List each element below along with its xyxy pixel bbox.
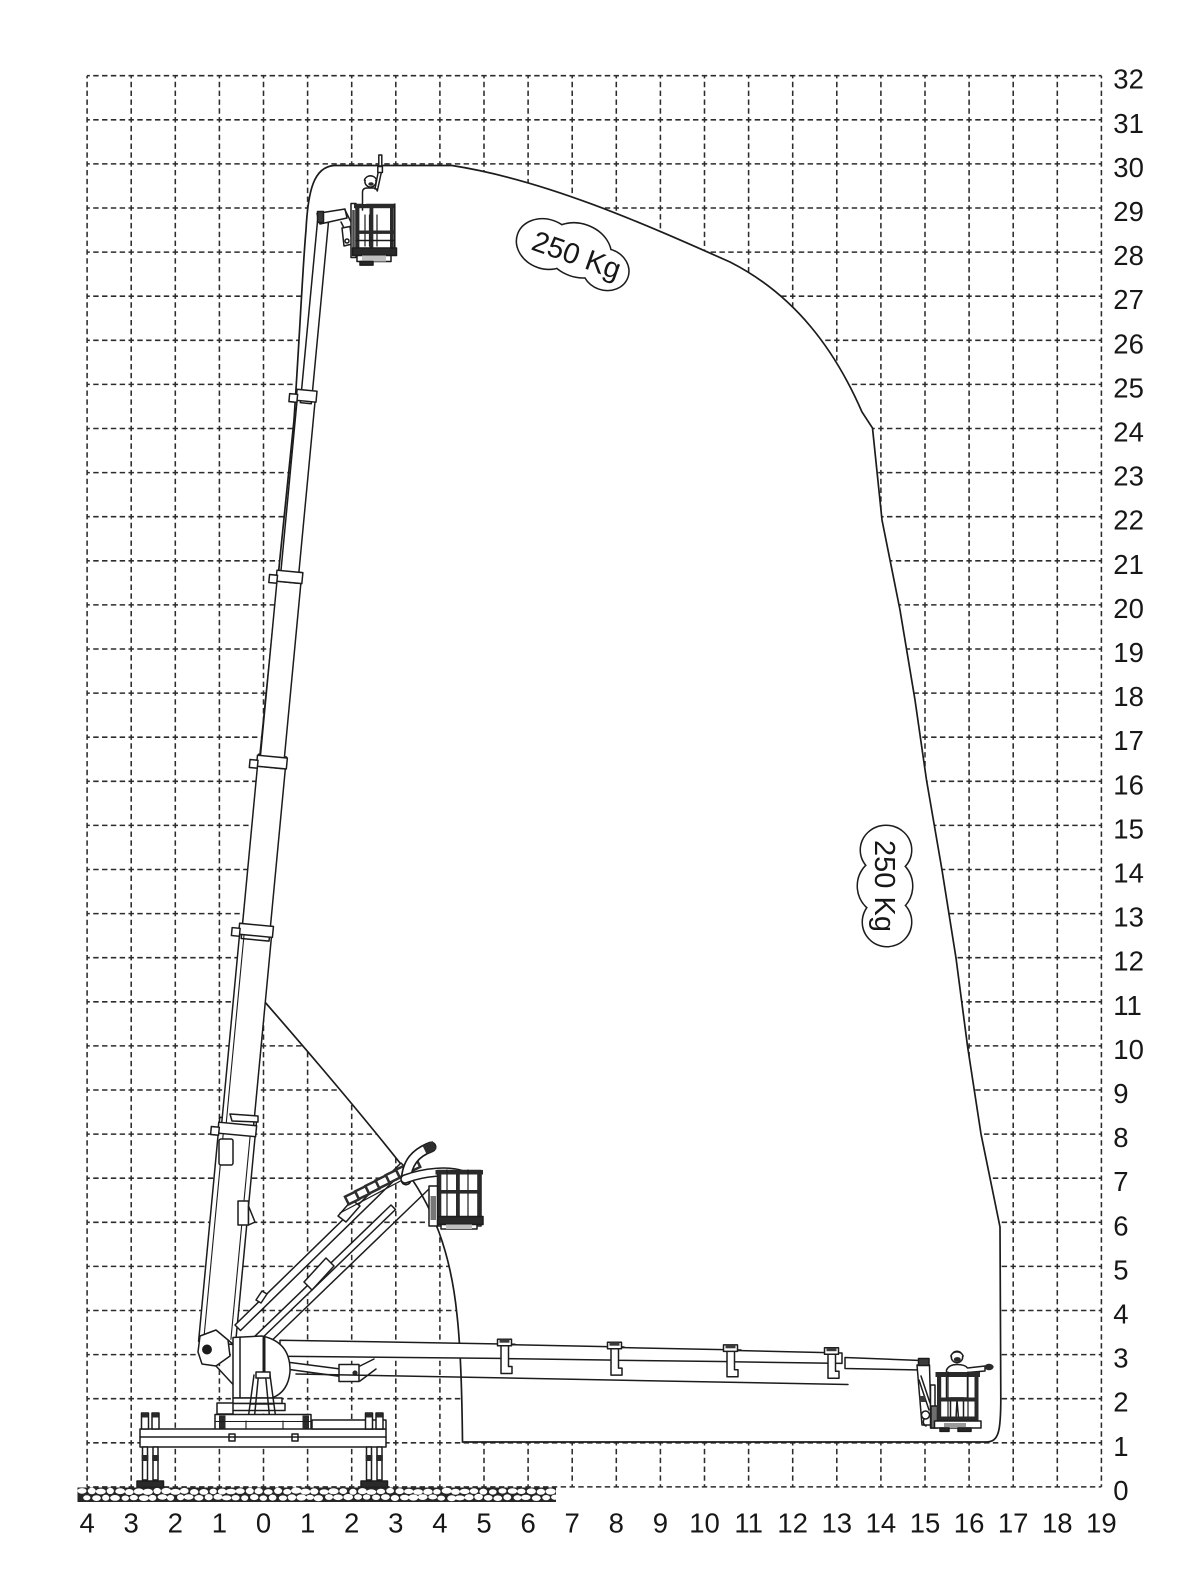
svg-text:11: 11 [734,1508,763,1539]
svg-text:17: 17 [998,1508,1029,1539]
svg-text:22: 22 [1113,505,1144,536]
svg-text:3: 3 [124,1508,139,1539]
svg-text:19: 19 [1113,637,1144,668]
svg-text:10: 10 [1113,1034,1144,1065]
svg-text:21: 21 [1113,549,1144,580]
svg-text:6: 6 [1113,1210,1128,1241]
svg-text:4: 4 [1113,1299,1128,1330]
svg-text:11: 11 [1113,990,1142,1021]
svg-text:17: 17 [1113,725,1144,756]
svg-text:28: 28 [1113,240,1144,271]
svg-text:0: 0 [1113,1475,1128,1506]
svg-text:4: 4 [79,1508,94,1539]
svg-text:8: 8 [1113,1122,1128,1153]
svg-text:4: 4 [432,1508,447,1539]
svg-text:3: 3 [388,1508,403,1539]
svg-text:26: 26 [1113,328,1144,359]
svg-text:29: 29 [1113,196,1144,227]
svg-text:0: 0 [256,1508,271,1539]
svg-text:5: 5 [476,1508,491,1539]
svg-text:2: 2 [1113,1387,1128,1418]
svg-text:15: 15 [1113,813,1144,844]
svg-text:14: 14 [866,1508,897,1539]
svg-text:1: 1 [212,1508,227,1539]
svg-text:12: 12 [777,1508,808,1539]
svg-text:32: 32 [1113,64,1144,95]
svg-text:9: 9 [653,1508,668,1539]
svg-text:23: 23 [1113,461,1144,492]
svg-text:30: 30 [1113,152,1144,183]
svg-text:10: 10 [689,1508,720,1539]
svg-text:2: 2 [168,1508,183,1539]
svg-text:14: 14 [1113,858,1144,889]
svg-text:1: 1 [300,1508,315,1539]
svg-text:13: 13 [1113,902,1144,933]
svg-text:8: 8 [609,1508,624,1539]
svg-text:5: 5 [1113,1254,1128,1285]
svg-text:18: 18 [1042,1508,1073,1539]
svg-text:25: 25 [1113,372,1144,403]
svg-text:16: 16 [954,1508,985,1539]
svg-text:7: 7 [565,1508,580,1539]
svg-text:18: 18 [1113,681,1144,712]
svg-text:3: 3 [1113,1343,1128,1374]
svg-text:1: 1 [1113,1431,1128,1462]
svg-text:31: 31 [1113,108,1144,139]
svg-text:19: 19 [1086,1508,1117,1539]
svg-text:12: 12 [1113,946,1144,977]
svg-text:2: 2 [344,1508,359,1539]
svg-text:7: 7 [1113,1166,1128,1197]
svg-text:24: 24 [1113,417,1144,448]
svg-text:250 Kg: 250 Kg [868,840,900,932]
svg-text:16: 16 [1113,769,1144,800]
svg-text:15: 15 [910,1508,941,1539]
svg-text:9: 9 [1113,1078,1128,1109]
svg-text:20: 20 [1113,593,1144,624]
svg-text:6: 6 [520,1508,535,1539]
svg-text:27: 27 [1113,284,1144,315]
svg-text:13: 13 [822,1508,853,1539]
